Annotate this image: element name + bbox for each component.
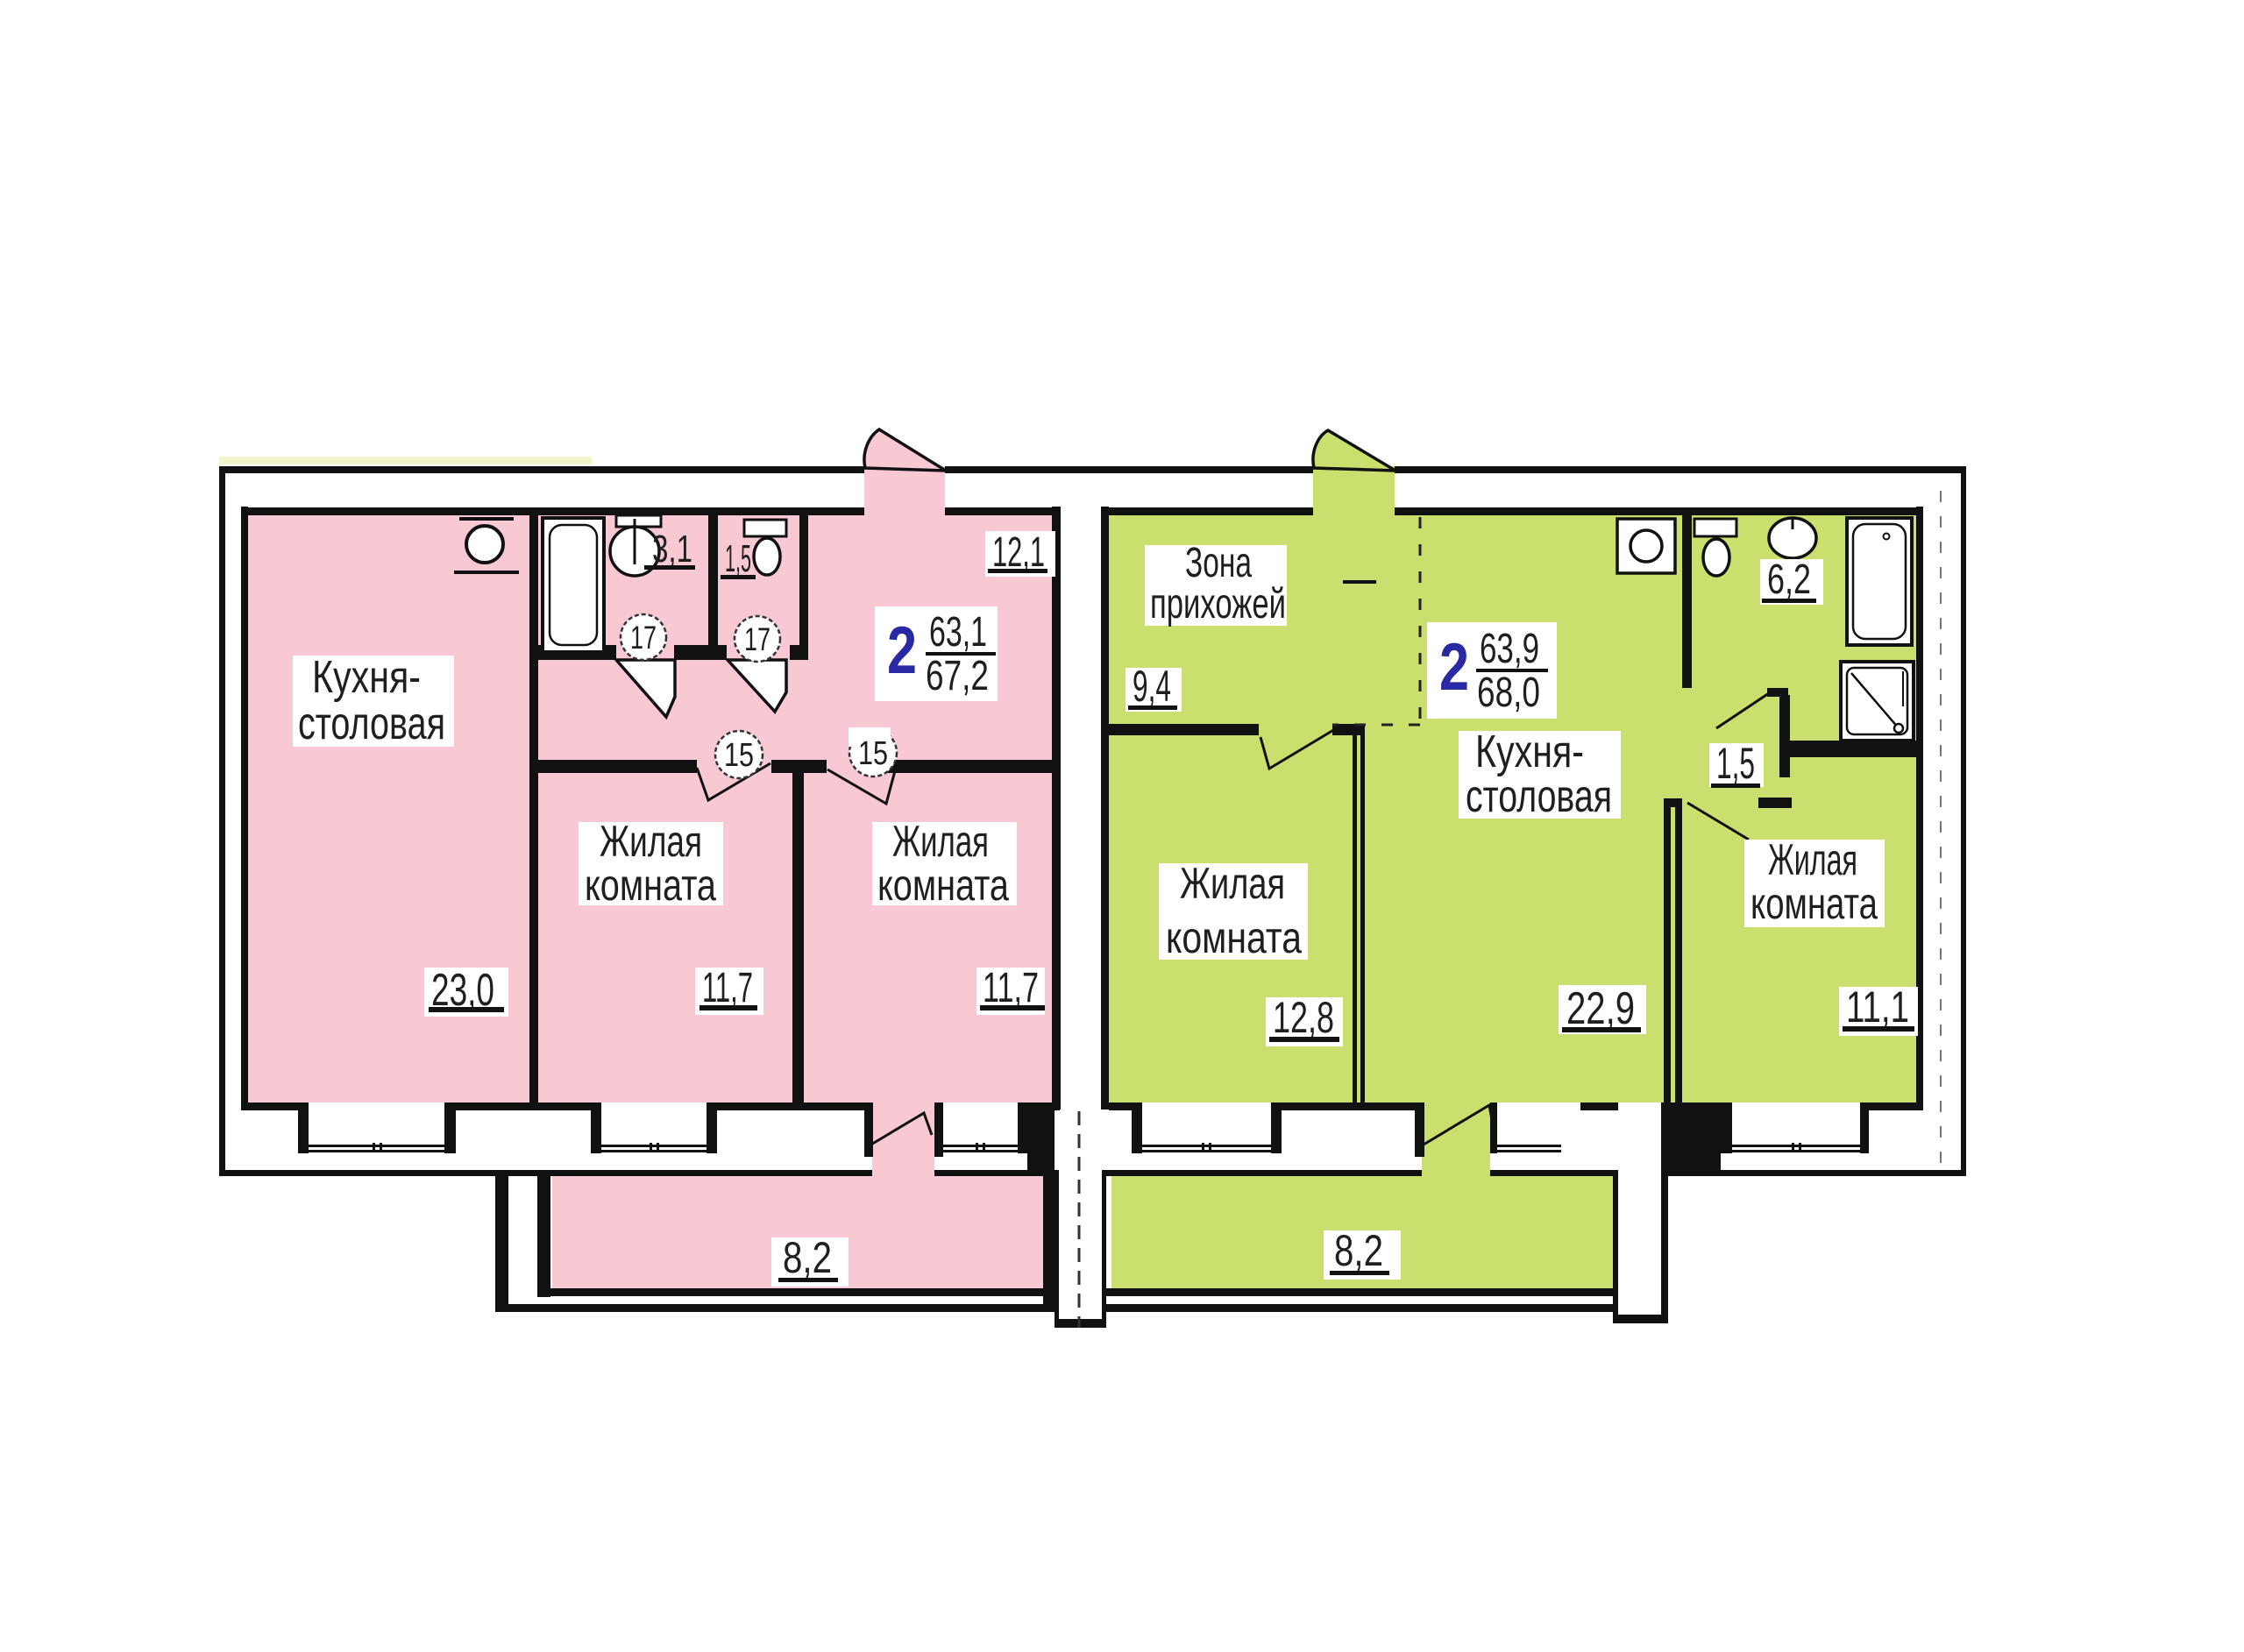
svg-text:комната: комната — [877, 861, 1009, 910]
svg-text:Жилая: Жилая — [600, 817, 702, 866]
svg-text:2: 2 — [887, 613, 917, 688]
svg-text:Кухня-: Кухня- — [1475, 727, 1584, 777]
svg-text:прихожей: прихожей — [1150, 581, 1286, 627]
svg-text:Кухня-: Кухня- — [312, 652, 421, 703]
svg-text:Жилая: Жилая — [892, 817, 989, 866]
svg-text:6,2: 6,2 — [1767, 557, 1811, 603]
svg-text:11,1: 11,1 — [1846, 982, 1909, 1032]
svg-text:63,9: 63,9 — [1480, 626, 1539, 672]
svg-text:8,2: 8,2 — [1334, 1226, 1383, 1275]
svg-text:63,1: 63,1 — [929, 609, 987, 656]
svg-text:столовая: столовая — [298, 698, 445, 749]
svg-text:1,5: 1,5 — [1716, 739, 1755, 788]
svg-text:17: 17 — [744, 621, 770, 657]
svg-text:Жилая: Жилая — [1180, 859, 1285, 908]
svg-text:Жилая: Жилая — [1768, 835, 1857, 884]
svg-text:Зона: Зона — [1185, 540, 1252, 586]
svg-text:комната: комната — [1750, 879, 1878, 928]
svg-text:1,5: 1,5 — [725, 537, 751, 580]
svg-text:9,4: 9,4 — [1133, 662, 1171, 711]
svg-text:11,7: 11,7 — [702, 965, 753, 1011]
svg-text:комната: комната — [585, 861, 716, 910]
svg-text:12,8: 12,8 — [1273, 993, 1334, 1042]
svg-text:68,0: 68,0 — [1477, 670, 1540, 716]
svg-text:столовая: столовая — [1466, 771, 1612, 822]
svg-text:комната: комната — [1166, 913, 1302, 962]
svg-text:22,9: 22,9 — [1566, 983, 1635, 1034]
svg-text:8,2: 8,2 — [783, 1233, 832, 1282]
svg-text:67,2: 67,2 — [926, 653, 989, 699]
svg-text:11,7: 11,7 — [983, 965, 1039, 1011]
svg-text:2: 2 — [1439, 630, 1469, 705]
svg-text:15: 15 — [858, 735, 888, 772]
svg-text:15: 15 — [724, 737, 754, 774]
svg-text:17: 17 — [630, 620, 657, 656]
svg-text:3,1: 3,1 — [652, 528, 692, 571]
